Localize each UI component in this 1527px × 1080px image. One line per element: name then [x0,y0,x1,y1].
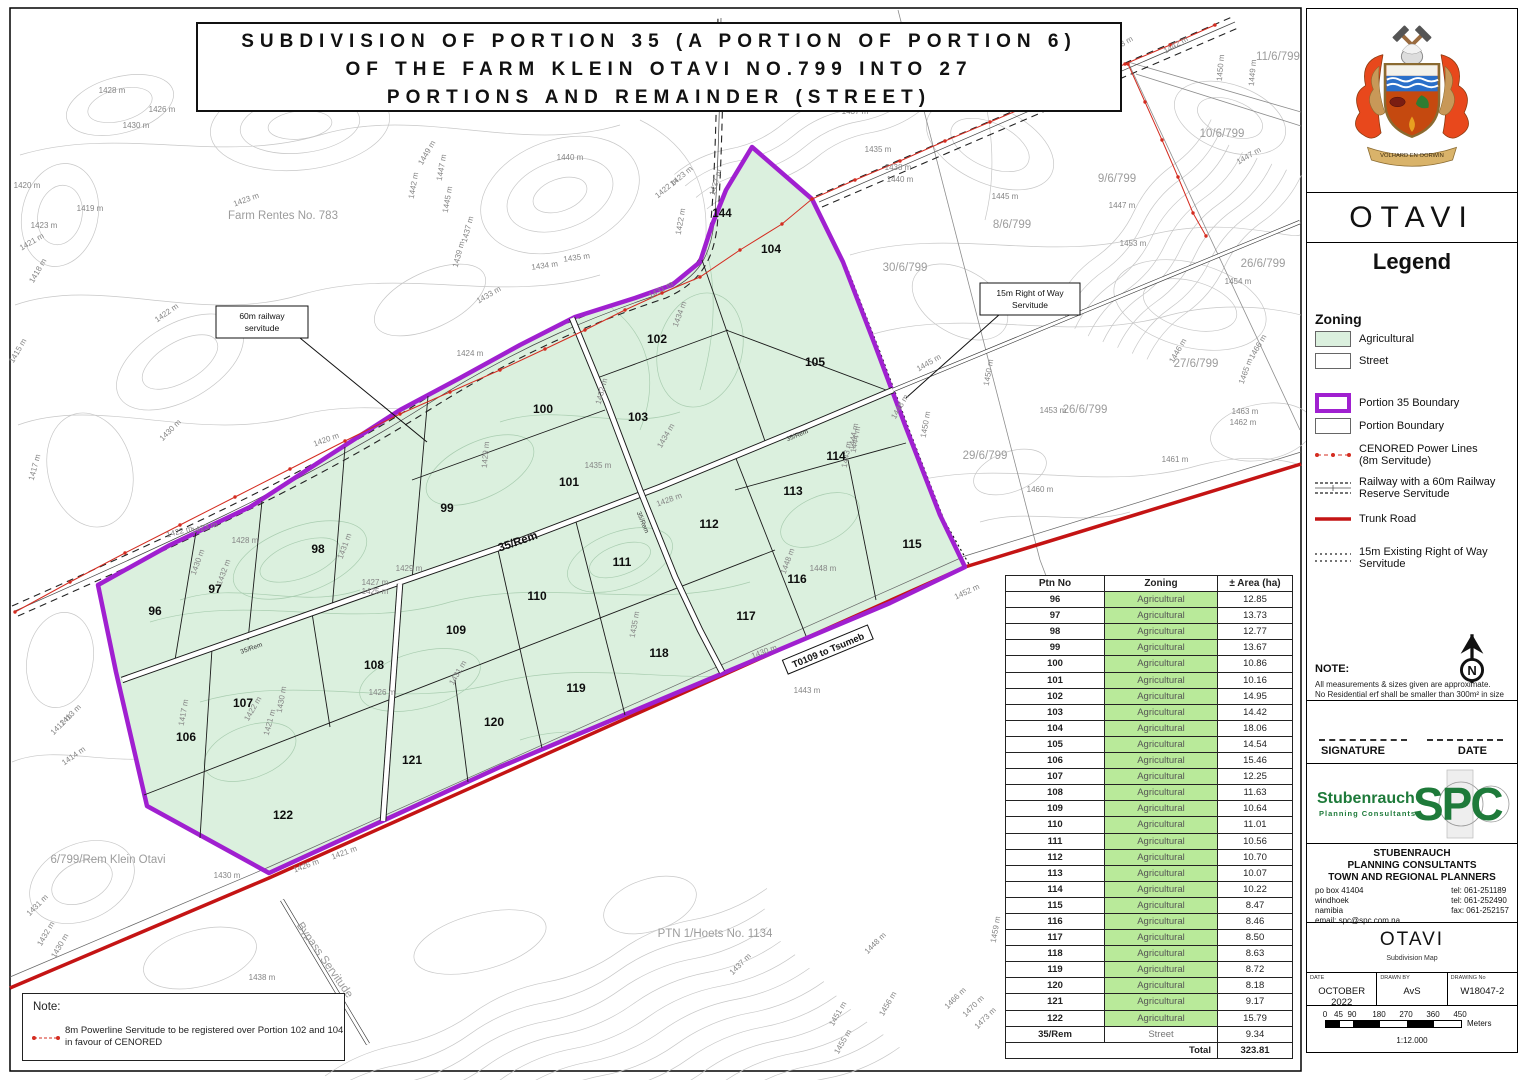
portion-number: 120 [484,715,504,729]
scale-tick: 360 [1426,1010,1439,1019]
legend-item-agricultural: Agricultural [1315,331,1414,347]
portion-number: 108 [364,658,384,672]
scale-tick: 90 [1348,1010,1357,1019]
table-row: 117Agricultural8.50 [1006,930,1293,946]
header-ptn-no: Ptn No [1006,576,1105,592]
table-row: 111Agricultural10.56 [1006,833,1293,849]
otavi-coat-of-arms: VOLHARD EN OORWIN [1354,22,1470,180]
right-of-way-glyph-icon [1315,551,1351,565]
date-line [1427,739,1503,741]
contour-label: 1426 m [369,688,396,697]
svg-text:servitude: servitude [245,323,280,333]
scale-tick: 45 [1334,1010,1343,1019]
svg-text:N: N [1467,663,1476,678]
table-row: 100Agricultural10.86 [1006,656,1293,672]
contour-label: 1440 m [557,153,584,162]
contour-label: 1453 m [1120,239,1147,248]
header-zoning: Zoning [1105,576,1218,592]
contour-label: 1420 m [14,181,41,190]
total-label: Total [1006,1042,1218,1058]
powerline-symbol-icon [31,1034,61,1042]
contour-label: 1428 m [99,86,126,95]
legend-panel: Legend Zoning Agricultural Street Portio… [1307,243,1517,701]
signature-line [1319,739,1407,741]
svg-text:Servitude: Servitude [1012,300,1048,310]
contour-label: 1462 m [1230,418,1257,427]
table-row: 97Agricultural13.73 [1006,608,1293,624]
drawing-meta-panel: DATE OCTOBER 2022 DRAWN BY AvS DRAWING N… [1307,973,1517,1006]
contour-label: 1438 m [249,973,276,982]
table-row: 102Agricultural14.95 [1006,688,1293,704]
scale-tick: 270 [1399,1010,1412,1019]
legend-label: CENORED Power Lines(8m Servitude) [1359,443,1478,467]
meta-drawing-no: DRAWING No W18047-2 [1448,973,1517,1005]
portion-number: 115 [902,537,922,551]
contour-label: 1463 m [1232,407,1259,416]
meta-drawn-by: DRAWN BY AvS [1377,973,1447,1005]
legend-item-trunk-road: Trunk Road [1315,513,1416,525]
portion-number: 111 [613,555,632,569]
coat-of-arms-panel: VOLHARD EN OORWIN [1307,9,1517,193]
street-swatch [1315,353,1351,369]
contour-label: 1435 m [865,145,892,154]
map-note: Note: 8m Powerline Servitude to be regis… [22,993,345,1061]
table-row: 103Agricultural14.42 [1006,704,1293,720]
contour-label: 1447 m [1109,201,1136,210]
portion35-boundary-swatch [1315,393,1351,413]
consultant-logo-panel: Stubenrauch Planning Consultants SPC [1307,764,1517,844]
sheet-title: SUBDIVISION OF PORTION 35 (A PORTION OF … [196,22,1122,112]
table-row: 115Agricultural8.47 [1006,897,1293,913]
legend-zoning-heading: Zoning [1315,311,1362,327]
portion-number: 109 [446,623,466,637]
spc-logo: SPC [1409,768,1513,840]
legend-label: Agricultural [1359,333,1414,345]
legend-item-portion35-boundary: Portion 35 Boundary [1315,393,1459,413]
parcel-label: 30/6/799 [883,262,928,274]
portion-number: 103 [628,410,648,424]
legend-item-portion-boundary: Portion Boundary [1315,418,1444,434]
table-row: 101Agricultural10.16 [1006,672,1293,688]
legend-item-railway: Railway with a 60m RailwayReserve Servit… [1315,476,1495,500]
contour-label: 1448 m [810,564,837,573]
parcel-label: 27/6/799 [1174,358,1219,370]
table-row: 104Agricultural18.06 [1006,720,1293,736]
agricultural-swatch [1315,331,1351,347]
contour-label: 1435 m [585,461,612,470]
spc-letters: SPC [1413,778,1502,830]
contour-label: 1426 m [149,105,176,114]
subdivision-map-sheet: 60m railway servitude 15m Right of Way S… [0,0,1527,1080]
scale-tick: 450 [1453,1010,1466,1019]
date-label: DATE [1458,745,1487,757]
legend-label: Portion 35 Boundary [1359,397,1459,409]
portion-number: 117 [736,609,756,623]
table-row: 108Agricultural11.63 [1006,785,1293,801]
contour-label: 1425 m [362,587,389,596]
town-name: OTAVI [1307,193,1517,243]
note-line-2: in favour of CENORED [65,1037,162,1048]
trunk-road-glyph-icon [1315,515,1351,523]
firm-line2: PLANNING CONSULTANTS [1307,860,1517,872]
contour-label: 1460 m [1027,485,1054,494]
legend-item-street: Street [1315,353,1388,369]
parcel-label: 29/6/799 [963,450,1008,462]
contour-label: 1427 m [362,578,389,587]
contour-label: 1429 m [396,564,423,573]
title-line-2: OF THE FARM KLEIN OTAVI NO.799 INTO 27 [198,56,1120,84]
portion-number: 118 [649,646,669,660]
legend-label: 15m Existing Right of WayServitude [1359,546,1488,570]
portion-number: 96 [148,604,162,618]
parcel-label: 9/6/799 [1098,173,1136,185]
portion-area-table: Ptn No Zoning ± Area (ha) 96Agricultural… [1005,575,1293,1059]
logo-subtitle: Planning Consultants [1319,809,1416,818]
firm-address: po box 41404windhoek namibiaemail: spc@s… [1315,886,1400,926]
table-row: 112Agricultural10.70 [1006,849,1293,865]
map-canvas: 60m railway servitude 15m Right of Way S… [0,0,1527,1080]
scale-bar [1325,1020,1462,1028]
contour-label: 1428 m [232,536,259,545]
legend-label: Railway with a 60m RailwayReserve Servit… [1359,476,1495,500]
table-row: 107Agricultural12.25 [1006,769,1293,785]
table-row: 99Agricultural13.67 [1006,640,1293,656]
firm-line3: TOWN AND REGIONAL PLANNERS [1307,872,1517,884]
portion-number: 119 [566,681,586,695]
portion-number: 113 [783,484,803,498]
table-row: 122Agricultural15.79 [1006,1010,1293,1026]
scale-unit: Meters [1467,1019,1491,1028]
table-row: 110Agricultural11.01 [1006,817,1293,833]
total-value: 323.81 [1217,1042,1292,1058]
portion-number: 102 [647,332,667,346]
portion-number: 105 [805,355,825,369]
portion-number: 107 [233,696,253,710]
legend-item-cenored: CENORED Power Lines(8m Servitude) [1315,443,1478,467]
project-panel: OTAVI Subdivision Map [1307,923,1517,973]
table-row: 96Agricultural12.85 [1006,592,1293,608]
contour-label: 1453 m [1040,406,1067,415]
north-arrow-icon: N [1455,631,1489,683]
firm-details-panel: STUBENRAUCH PLANNING CONSULTANTS TOWN AN… [1307,844,1517,923]
table-row: 116Agricultural8.46 [1006,913,1293,929]
parcel-label: 26/6/799 [1241,258,1286,270]
portion-number: 97 [208,582,222,596]
table-row: 118Agricultural8.63 [1006,946,1293,962]
contour-label: 1419 m [77,204,104,213]
title-line-1: SUBDIVISION OF PORTION 35 (A PORTION OF … [198,28,1120,56]
parcel-label: PTN 1/Hoets No. 1134 [658,928,773,940]
firm-phones: tel: 061-251189tel: 061-252490 fax: 061-… [1451,886,1509,926]
scale-ratio: 1:12.000 [1307,1036,1517,1045]
scale-tick: 180 [1372,1010,1385,1019]
legend-title: Legend [1307,249,1517,275]
logo-name: Stubenrauch [1317,790,1415,808]
table-row: 121Agricultural9.17 [1006,994,1293,1010]
contour-label: 1445 m [992,192,1019,201]
legend-label: Trunk Road [1359,513,1416,525]
portion-number: 104 [761,242,781,256]
header-area: ± Area (ha) [1217,576,1292,592]
table-total-row: Total 323.81 [1006,1042,1293,1058]
contour-label: 1424 m [457,349,484,358]
contour-label: 1430 m [214,871,241,880]
portion-number: 121 [402,753,422,767]
portion-boundary-swatch [1315,418,1351,434]
scale-tick: 0 [1323,1010,1327,1019]
portion-number: 101 [559,475,579,489]
table-row: 120Agricultural8.18 [1006,978,1293,994]
sidebar-note-heading: NOTE: [1315,663,1349,675]
parcel-label: 8/6/799 [993,219,1031,231]
firm-name: STUBENRAUCH [1307,844,1517,860]
signature-panel: SIGNATURE DATE [1307,701,1517,764]
portion-number: 114 [826,449,846,463]
note-line-1: 8m Powerline Servitude to be registered … [65,1025,343,1036]
table-row: 98Agricultural12.77 [1006,624,1293,640]
table-header-row: Ptn No Zoning ± Area (ha) [1006,576,1293,592]
table-row: 106Agricultural15.46 [1006,753,1293,769]
sidebar-note-line1: All measurements & sizes given are appro… [1315,680,1491,689]
parcel-label: 11/6/799 [1256,51,1300,63]
contour-label: 1423 m [31,221,58,230]
table-row: 109Agricultural10.64 [1006,801,1293,817]
contour-label: 1454 m [1225,277,1252,286]
parcel-label: Farm Rentes No. 783 [228,210,338,222]
legend-label: Street [1359,355,1388,367]
portion-number: 112 [699,517,719,531]
project-subtitle: Subdivision Map [1307,951,1517,962]
svg-text:15m Right of Way: 15m Right of Way [996,288,1064,298]
table-row: 113Agricultural10.07 [1006,865,1293,881]
coat-of-arms-motto: VOLHARD EN OORWIN [1380,153,1444,159]
contour-label: 1438 m [885,163,912,172]
svg-text:60m railway: 60m railway [239,311,285,321]
portion-number: 100 [533,402,553,416]
scale-bar-panel: 04590180270360450 Meters 1:12.000 [1307,1006,1517,1052]
signature-label: SIGNATURE [1321,745,1385,757]
note-label: Note: [33,1001,61,1013]
contour-label: 1461 m [1162,455,1189,464]
table-row: 35/RemStreet9.34 [1006,1026,1293,1042]
portion-number: 106 [176,730,196,744]
portion-number: 122 [273,808,293,822]
project-name: OTAVI [1307,923,1517,951]
parcel-label: 6/799/Rem Klein Otavi [50,854,165,866]
powerline-glyph-icon [1315,450,1351,460]
legend-item-row15: 15m Existing Right of WayServitude [1315,546,1488,570]
portion-number: 110 [527,589,547,603]
contour-label: 1443 m [794,686,821,695]
title-block-sidebar: VOLHARD EN OORWIN OTAVI Legend Zoning Ag… [1306,8,1518,1053]
table-row: 105Agricultural14.54 [1006,736,1293,752]
sidebar-note-line2: No Residential erf shall be smaller than… [1315,690,1504,699]
meta-date: DATE OCTOBER 2022 [1307,973,1377,1005]
portion-number: 98 [311,542,325,556]
street-label: 144 [712,208,732,220]
legend-label: Portion Boundary [1359,420,1444,432]
title-line-3: PORTIONS AND REMAINDER (STREET) [198,84,1120,112]
parcel-label: 10/6/799 [1200,128,1245,140]
contour-label: 1430 m [123,121,150,130]
table-row: 119Agricultural8.72 [1006,962,1293,978]
portion-number: 99 [440,501,454,515]
contour-label: 1440 m [887,175,914,184]
portion-number: 116 [787,572,807,586]
parcel-label: 26/6/799 [1063,404,1108,416]
railway-glyph-icon [1315,481,1351,495]
table-row: 114Agricultural10.22 [1006,881,1293,897]
